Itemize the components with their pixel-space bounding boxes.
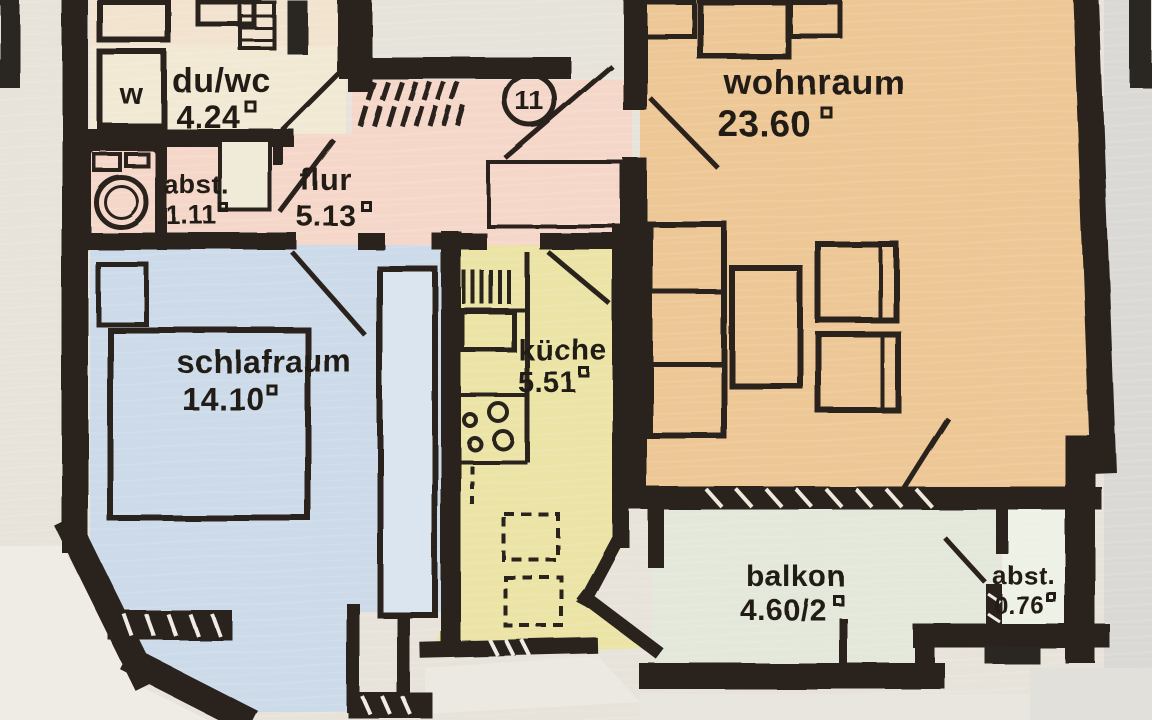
svg-text:4.60/2: 4.60/2 (740, 594, 826, 627)
svg-text:schlafraum: schlafraum (176, 343, 352, 379)
scan-edge-top-left (0, 0, 20, 88)
window-schlafraum (108, 610, 232, 640)
floor-plan-svg: 11 du/wc 4.24 abst. 1.11 flur 5.13 wohnr… (0, 0, 1152, 720)
wall-duct-stub (287, 0, 307, 54)
svg-text:abst.: abst. (992, 560, 1055, 590)
svg-text:du/wc: du/wc (172, 62, 271, 100)
floor-plan-scan: 11 du/wc 4.24 abst. 1.11 flur 5.13 wohnr… (0, 0, 1152, 720)
window-band (348, 692, 432, 718)
wall-abst2-tab (985, 646, 1040, 664)
scan-edge-top-right (1130, 0, 1152, 88)
label-washing-machine: w (119, 78, 144, 111)
outside-bottom-right (1030, 668, 1152, 720)
svg-text:balkon: balkon (746, 560, 846, 593)
svg-text:23.60: 23.60 (718, 103, 811, 144)
door-number-text: 11 (515, 86, 545, 116)
svg-text:5.51: 5.51 (518, 367, 576, 399)
svg-text:4.24: 4.24 (176, 99, 240, 135)
svg-text:wohnraum: wohnraum (723, 63, 905, 102)
wall-outer-right (1086, 0, 1103, 460)
svg-text:5.13: 5.13 (296, 200, 356, 233)
svg-text:küche: küche (518, 334, 607, 367)
svg-text:1.11: 1.11 (166, 200, 217, 230)
window-bottom-middle (348, 692, 432, 718)
svg-text:abst.: abst. (164, 170, 230, 200)
svg-text:14.10: 14.10 (182, 381, 265, 417)
schlafraum-wardrobe (380, 269, 435, 615)
svg-text:flur: flur (300, 162, 352, 197)
svg-text:0.76: 0.76 (994, 592, 1045, 620)
